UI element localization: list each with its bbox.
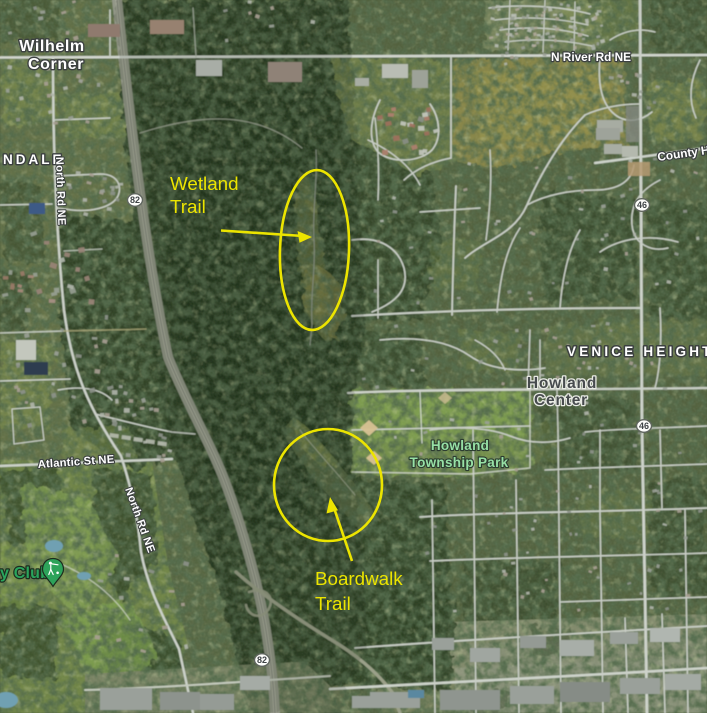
- svg-text:Howland: Howland: [431, 438, 489, 453]
- svg-text:Boardwalk: Boardwalk: [315, 568, 403, 589]
- svg-text:VENICE HEIGHT: VENICE HEIGHT: [567, 344, 707, 359]
- svg-text:Center: Center: [534, 392, 588, 409]
- svg-text:North Rd NE: North Rd NE: [53, 157, 67, 226]
- svg-text:Township Park: Township Park: [410, 455, 509, 470]
- svg-text:Wilhelm: Wilhelm: [19, 38, 84, 55]
- svg-text:Trail: Trail: [315, 593, 351, 614]
- svg-text:46: 46: [639, 421, 649, 431]
- svg-text:Howland: Howland: [527, 375, 597, 392]
- svg-text:82: 82: [257, 655, 267, 665]
- svg-text:N River Rd NE: N River Rd NE: [551, 50, 631, 64]
- svg-text:46: 46: [637, 200, 647, 210]
- svg-text:Trail: Trail: [170, 196, 206, 217]
- svg-text:Corner: Corner: [28, 56, 84, 73]
- svg-text:82: 82: [130, 195, 140, 205]
- svg-text:Wetland: Wetland: [170, 173, 239, 194]
